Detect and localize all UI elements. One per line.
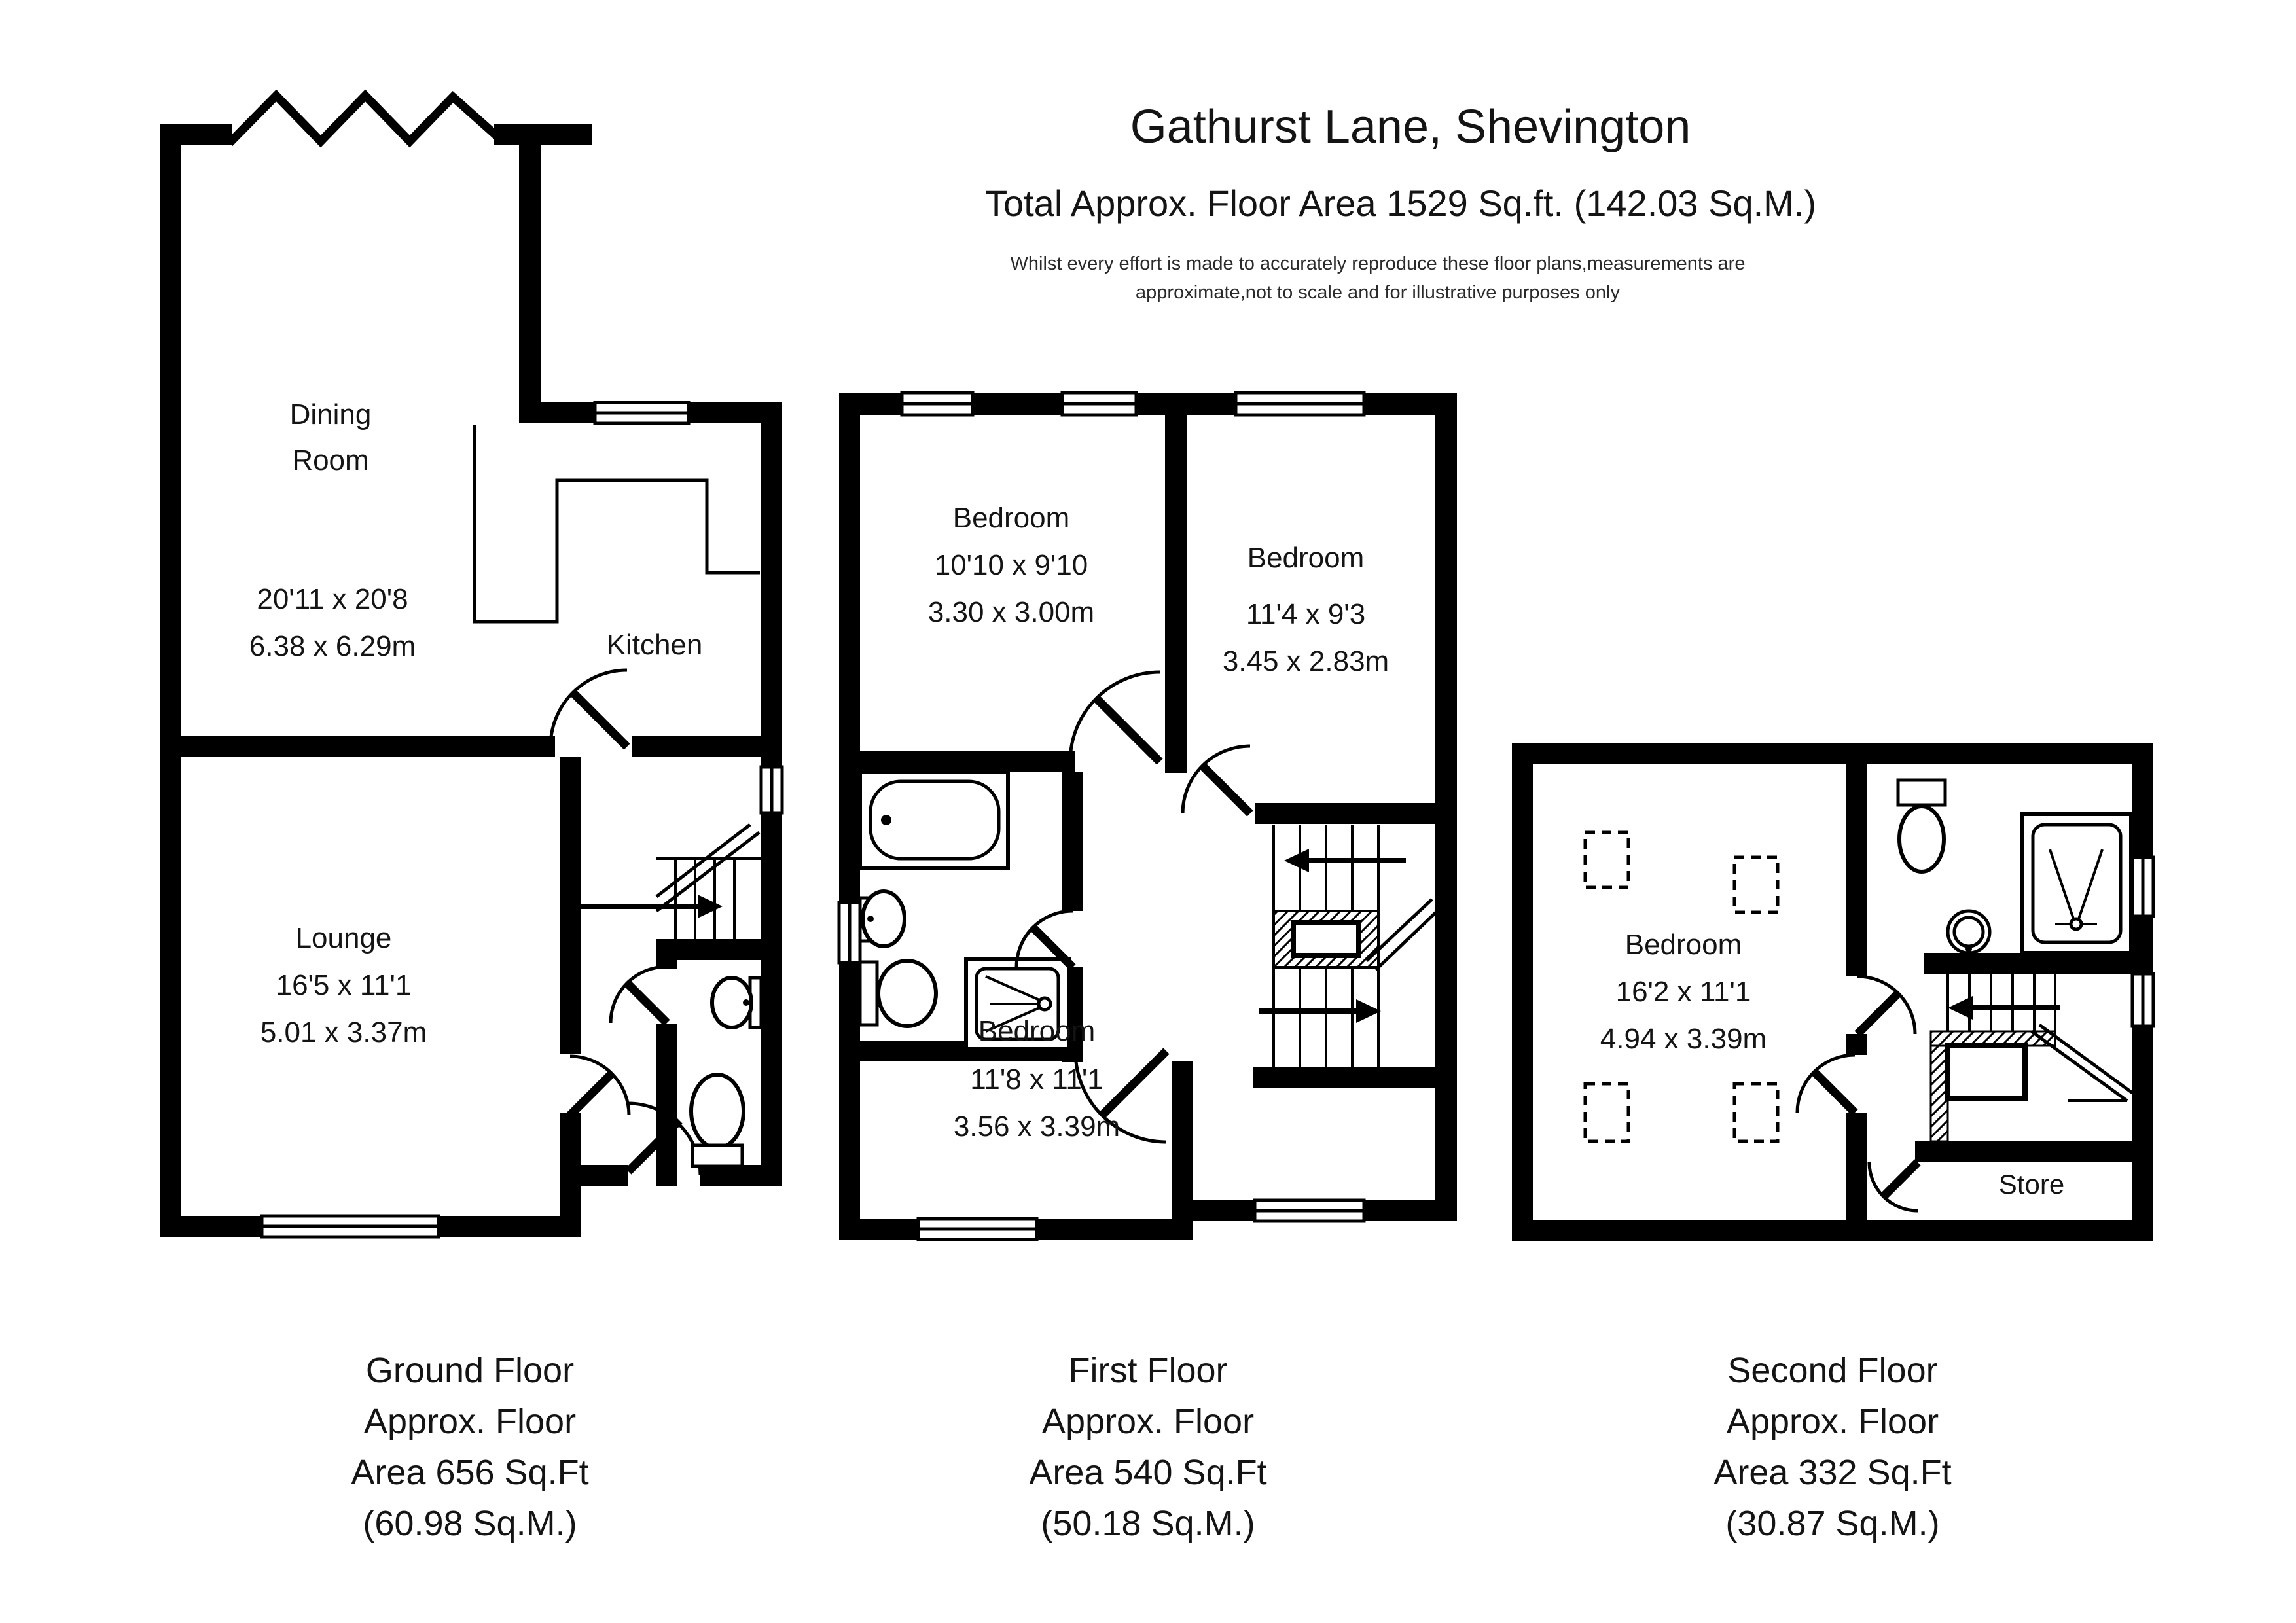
floor-label-line: Area 332 Sq.Ft <box>1713 1453 1951 1492</box>
floor-label-line: Approx. Floor <box>1042 1402 1254 1441</box>
room-label-dining-2: Room <box>292 444 368 476</box>
floorplan-page: Gathurst Lane, Shevington Total Approx. … <box>0 0 2296 1623</box>
room-dims-bedroom1-imperial: 10'10 x 9'10 <box>935 549 1088 581</box>
room-label-store: Store <box>1999 1169 2064 1200</box>
window-marker <box>1255 1200 1364 1221</box>
toilet-icon <box>1898 780 1945 872</box>
window-marker <box>2132 974 2153 1026</box>
floor-label-line: (60.98 Sq.M.) <box>363 1504 577 1543</box>
room-dims-bedroom-metric: 4.94 x 3.39m <box>1600 1023 1767 1055</box>
room-dims-bedroom2-metric: 3.45 x 2.83m <box>1223 645 1389 677</box>
disclaimer-line1: Whilst every effort is made to accuratel… <box>1011 253 1746 274</box>
room-dims-lounge-metric: 5.01 x 3.37m <box>260 1016 427 1048</box>
room-dims-bedroom2-imperial: 11'4 x 9'3 <box>1246 598 1365 630</box>
window-marker <box>1062 393 1136 415</box>
floorplan-canvas: Gathurst Lane, Shevington Total Approx. … <box>0 0 2296 1623</box>
floor-label-line: Approx. Floor <box>364 1402 576 1441</box>
window-marker <box>839 902 860 963</box>
page-title: Gathurst Lane, Shevington <box>1130 101 1691 153</box>
floor-label-line: Ground Floor <box>366 1351 574 1390</box>
room-dims-dining-metric: 6.38 x 6.29m <box>249 630 416 662</box>
floor-label-line: (50.18 Sq.M.) <box>1041 1504 1255 1543</box>
bath-icon <box>860 772 1008 868</box>
page-subtitle: Total Approx. Floor Area 1529 Sq.ft. (14… <box>985 183 1816 224</box>
room-dims-bedroom3-metric: 3.56 x 3.39m <box>954 1111 1120 1143</box>
floor-label-line: Area 656 Sq.Ft <box>351 1453 588 1492</box>
sink-icon <box>712 978 761 1027</box>
floor-label-line: Approx. Floor <box>1727 1402 1939 1441</box>
room-dims-bedroom-imperial: 16'2 x 11'1 <box>1616 976 1751 1008</box>
window-marker <box>262 1216 439 1237</box>
window-marker <box>1236 393 1364 415</box>
sink-icon <box>1948 911 1990 953</box>
sink-icon <box>860 891 905 946</box>
room-label-dining-1: Dining <box>290 399 372 431</box>
window-marker <box>902 393 973 415</box>
disclaimer-line2: approximate,not to scale and for illustr… <box>1136 282 1620 303</box>
window-marker <box>595 402 689 423</box>
window-marker <box>918 1219 1037 1240</box>
window-marker <box>2132 857 2153 916</box>
floor-label-line: (30.87 Sq.M.) <box>1725 1504 1939 1543</box>
window-marker <box>761 767 782 813</box>
room-label-bedroom3: Bedroom <box>978 1015 1096 1047</box>
toilet-icon <box>691 1075 744 1166</box>
toilet-icon <box>860 961 936 1026</box>
room-label-lounge: Lounge <box>296 922 392 954</box>
room-label-bedroom1: Bedroom <box>953 502 1070 534</box>
floor-label-line: First Floor <box>1069 1351 1228 1390</box>
room-dims-lounge-imperial: 16'5 x 11'1 <box>276 969 412 1001</box>
room-dims-bedroom1-metric: 3.30 x 3.00m <box>928 596 1094 628</box>
shower-icon <box>2022 814 2131 953</box>
room-label-bedroom2: Bedroom <box>1247 542 1365 574</box>
room-dims-dining-imperial: 20'11 x 20'8 <box>257 583 408 615</box>
floor-label-line: Second Floor <box>1727 1351 1937 1390</box>
room-dims-bedroom3-imperial: 11'8 x 11'1 <box>970 1063 1103 1096</box>
floor-label-line: Area 540 Sq.Ft <box>1029 1453 1266 1492</box>
room-label-kitchen: Kitchen <box>607 629 703 661</box>
room-label-bedroom: Bedroom <box>1625 929 1742 961</box>
